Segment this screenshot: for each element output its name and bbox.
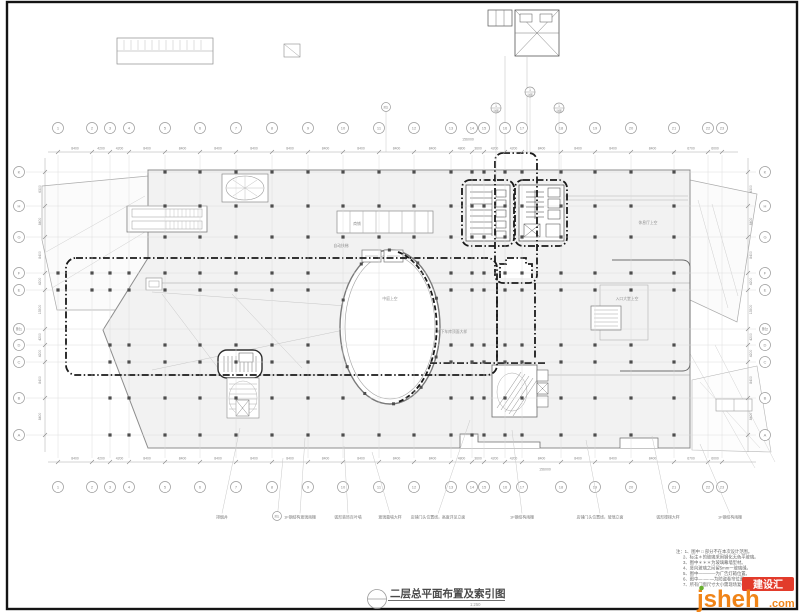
column-dot [470, 343, 473, 346]
dimension-label: 4200 [749, 278, 753, 286]
column-dot [559, 271, 562, 274]
column-dot [198, 204, 201, 207]
column-dot [503, 288, 506, 291]
column-dot-atrium [360, 262, 363, 265]
column-dot [629, 288, 632, 291]
column-dot-atrium [435, 297, 438, 300]
column-dot [629, 433, 632, 436]
column-dot [412, 204, 415, 207]
column-dot [270, 433, 273, 436]
grid-bubble-bottom-label: 23 [720, 485, 725, 490]
callout-label: 1F钢结构雨棚 [510, 515, 534, 520]
column-dot [503, 343, 506, 346]
grid-bubble-bottom-label: 21 [672, 485, 677, 490]
grid-bubble-left-label: K [18, 170, 21, 175]
column-dot [270, 204, 273, 207]
dimension-label: 8400 [250, 147, 258, 151]
dimension-label: 8400 [179, 457, 187, 461]
dimension-label: 4200 [491, 147, 499, 151]
callout-label: 弧形装饰百叶墙 [334, 515, 361, 520]
column-dot [593, 360, 596, 363]
column-dot [108, 360, 111, 363]
column-dot [470, 360, 473, 363]
dimension-label: 8400 [609, 147, 617, 151]
dimension-label: 6000 [711, 457, 719, 461]
floor-plan-drawing: 1184008400224200420033420042004484008400… [0, 0, 800, 612]
column-dot [108, 271, 111, 274]
dimension-label: 13500 [38, 305, 42, 315]
column-dot [234, 235, 237, 238]
column-dot [198, 288, 201, 291]
grid-bubble-bottom-label: 14 [470, 485, 475, 490]
column-dot [306, 288, 309, 291]
column-dot [559, 396, 562, 399]
dimension-label: 8400 [357, 457, 365, 461]
grid-bubble-top-label: 16 [503, 126, 508, 131]
column-dot [198, 235, 201, 238]
stair-right-mid [591, 306, 621, 330]
dimension-label: 8400 [322, 457, 330, 461]
drawing-title: 二层总平面布置及索引图 [390, 587, 506, 600]
column-dot [127, 271, 130, 274]
dimension-label: 8400 [393, 457, 401, 461]
grid-bubble-bottom-label: 22 [706, 485, 711, 490]
grid-bubble-left-label: H [18, 204, 21, 209]
column-dot [163, 360, 166, 363]
column-dot [163, 396, 166, 399]
column-dot [520, 235, 523, 238]
column-dot [108, 433, 111, 436]
column-dot [163, 170, 166, 173]
column-dot [306, 271, 309, 274]
grid-bubble-top-label: 10 [341, 126, 346, 131]
dimension-label: 6000 [711, 147, 719, 151]
column-dot [593, 170, 596, 173]
drawing-sheet: 1184008400224200420033420042004484008400… [0, 0, 800, 612]
grid-bubble-top-label: 15 [482, 126, 487, 131]
column-dot [198, 396, 201, 399]
column-dot [482, 204, 485, 207]
column-dot [559, 235, 562, 238]
column-dot [629, 271, 632, 274]
column-dot [198, 433, 201, 436]
dimension-label: 6300 [38, 185, 42, 193]
column-dot [163, 204, 166, 207]
dimension-label: 4200 [510, 457, 518, 461]
grid-bubble-top-label: 23 [720, 126, 725, 131]
column-dot [270, 360, 273, 363]
grid-bubble-top-label: 17 [520, 126, 525, 131]
grid-bubble-bottom-label: 13 [449, 485, 454, 490]
grid-bubble-left-label: 附1 [16, 326, 23, 332]
grid-bubble-right-label: B [764, 396, 767, 401]
dimension-label: 8400 [357, 147, 365, 151]
grid-bubble-right-label: H [764, 204, 767, 209]
column-dot-atrium [392, 402, 395, 405]
callout-label: 1F钢结构雨棚 [718, 515, 742, 520]
column-dot [306, 170, 309, 173]
grid-bubble-bottom-label: 12 [412, 485, 417, 490]
dimension-label: 4200 [97, 457, 105, 461]
callout-label: 排烟井 [216, 515, 228, 520]
column-dot [127, 360, 130, 363]
column-dot [56, 271, 59, 274]
column-dot [520, 360, 523, 363]
room-label: 自动扶梯 [333, 243, 348, 248]
dimension-label: 6300 [749, 185, 753, 193]
column-dot [306, 343, 309, 346]
grid-bubble-right-label: A [764, 433, 767, 438]
grid-bubble-bottom-label: 16 [503, 485, 508, 490]
column-dot [672, 288, 675, 291]
watermark-tld: .com [769, 598, 795, 610]
dimension-label: 8400 [71, 147, 79, 151]
dimension-label: 8400 [609, 457, 617, 461]
column-dot [520, 396, 523, 399]
column-dot [593, 204, 596, 207]
column-dot [198, 360, 201, 363]
watermark-leaf-icon [699, 586, 704, 591]
dimension-label: 4200 [38, 333, 42, 341]
column-dot [482, 343, 485, 346]
dimension-label: 4200 [116, 147, 124, 151]
dimension-label: 4200 [38, 278, 42, 286]
column-dot [306, 204, 309, 207]
room-label: 商铺 [353, 221, 361, 226]
column-dot [306, 360, 309, 363]
grid-bubble-right-label: D [764, 343, 767, 348]
grid-bubble-bottom-label: 15 [482, 485, 487, 490]
column-dot-atrium [363, 392, 366, 395]
column-dot [482, 235, 485, 238]
column-dot [593, 433, 596, 436]
dimension-label: 8400 [179, 147, 187, 151]
column-dot [503, 204, 506, 207]
dimension-label: 8400 [749, 218, 753, 226]
column-dot [377, 235, 380, 238]
column-dot-atrium [388, 249, 391, 252]
column-dot [449, 271, 452, 274]
leader-line [344, 446, 348, 514]
column-dot [520, 170, 523, 173]
column-dot [198, 170, 201, 173]
dimension-label: 4200 [491, 457, 499, 461]
column-dot [449, 204, 452, 207]
column-dot [127, 433, 130, 436]
column-dot [234, 204, 237, 207]
room-label: 中庭上空 [382, 296, 397, 301]
column-dot [470, 433, 473, 436]
column-dot [629, 170, 632, 173]
grid-bubble-top-label: 18 [559, 126, 564, 131]
column-dot [306, 396, 309, 399]
column-dot [449, 288, 452, 291]
detail-callout-sub: 详图 [556, 109, 562, 113]
grid-bubble-right-label: K [764, 170, 767, 175]
column-dot [470, 170, 473, 173]
column-dot [377, 204, 380, 207]
dimension-label: 4200 [116, 457, 124, 461]
column-dot [377, 433, 380, 436]
grid-bubble-bottom-label: 20 [629, 485, 634, 490]
dimension-label: 8400 [393, 147, 401, 151]
grid-bubble-top-label: 21 [672, 126, 677, 131]
column-dot [412, 235, 415, 238]
dimension-label: 6700 [687, 457, 695, 461]
dimension-label: 8400 [214, 147, 222, 151]
column-dot [234, 396, 237, 399]
column-dot [127, 288, 130, 291]
detail-callout-number: 1 [495, 104, 497, 108]
column-dot [672, 271, 675, 274]
column-dot [234, 288, 237, 291]
column-dot [629, 360, 632, 363]
dimension-label: 8400 [322, 147, 330, 151]
column-dot [559, 343, 562, 346]
aux-grid-bubble-label: 附2 [384, 104, 389, 109]
grid-bubble-left-label: E [18, 288, 21, 293]
dimension-label: 8400 [250, 457, 258, 461]
total-dimension-bottom: 156000 [539, 468, 551, 472]
column-dot [90, 271, 93, 274]
dimension-label: 8400 [71, 457, 79, 461]
column-dot [198, 343, 201, 346]
column-dot [503, 271, 506, 274]
column-dot [559, 170, 562, 173]
column-dot [482, 433, 485, 436]
column-dot [270, 271, 273, 274]
column-dot [629, 235, 632, 238]
dimension-label: 3600 [474, 147, 482, 151]
column-dot [56, 288, 59, 291]
leader-line [277, 458, 283, 521]
detail-callout-sub: 详图 [527, 93, 533, 97]
detail-callout-number: 1 [558, 104, 560, 108]
column-dot [520, 204, 523, 207]
dimension-label: 8400 [574, 457, 582, 461]
dimension-label: 8400 [574, 147, 582, 151]
column-dot [449, 396, 452, 399]
grid-bubble-top-label: 14 [470, 126, 475, 131]
total-dimension-top: 156000 [462, 138, 474, 142]
dimension-label: 8400 [286, 457, 294, 461]
column-dot [449, 235, 452, 238]
grid-bubble-bottom-label: 10 [341, 485, 346, 490]
dimension-label: 4200 [749, 333, 753, 341]
column-dot [270, 170, 273, 173]
column-dot [234, 360, 237, 363]
column-dot [163, 343, 166, 346]
grid-bubble-top-label: 13 [449, 126, 454, 131]
column-dot [593, 288, 596, 291]
column-dot [270, 396, 273, 399]
column-dot [482, 288, 485, 291]
column-dot [672, 204, 675, 207]
column-dot [503, 360, 506, 363]
column-dot [593, 343, 596, 346]
dimension-label: 8400 [538, 147, 546, 151]
column-dot [341, 396, 344, 399]
column-dot [306, 235, 309, 238]
column-dot-atrium [346, 365, 349, 368]
column-dot [270, 235, 273, 238]
column-dot [412, 433, 415, 436]
callout-label: 玻璃幕墙大样 [378, 515, 401, 520]
title-block: 二层总平面布置及索引图 1:250 [368, 587, 506, 609]
column-dot [108, 343, 111, 346]
grid-bubble-bottom-label: 17 [520, 485, 525, 490]
column-dot-atrium [420, 386, 423, 389]
column-dot [341, 204, 344, 207]
column-dot [559, 288, 562, 291]
column-dot [341, 170, 344, 173]
dimension-label: 8400 [538, 457, 546, 461]
column-dot [482, 271, 485, 274]
out-of-scope-right [690, 180, 757, 322]
grid-bubble-top-label: 12 [412, 126, 417, 131]
column-dot [482, 170, 485, 173]
column-dot [108, 288, 111, 291]
dimension-label: 13500 [749, 305, 753, 315]
column-dot [163, 271, 166, 274]
callout-label: 店铺门头位置线，玻璃立面 [577, 515, 624, 520]
leader-line [372, 452, 390, 514]
grid-bubble-right-label: G [763, 235, 766, 240]
callout-label: 弧形楼梯大样 [656, 515, 679, 520]
toilet-core [466, 185, 510, 241]
dimension-label: 4200 [97, 147, 105, 151]
column-dot [470, 396, 473, 399]
dimension-label: 8400 [286, 147, 294, 151]
dimension-label: 8400 [38, 218, 42, 226]
stair-elevator-core [519, 185, 564, 241]
column-dot [482, 360, 485, 363]
aux-grid-bubble-label: 附1 [275, 513, 280, 518]
column-dot [234, 170, 237, 173]
column-dot [470, 288, 473, 291]
grid-bubble-top-label: 22 [706, 126, 711, 131]
grid-bubble-right-label: E [764, 288, 767, 293]
dimension-label: 8400 [214, 457, 222, 461]
column-dot [672, 360, 675, 363]
dimension-label: 8400 [649, 457, 657, 461]
grid-bubble-left-label: D [18, 343, 21, 348]
callout-label: 1F钢结构玻璃雨棚 [284, 515, 316, 520]
column-dot [629, 204, 632, 207]
column-dot [520, 288, 523, 291]
column-dot [520, 343, 523, 346]
stair-top-left [222, 174, 268, 202]
column-dot [470, 204, 473, 207]
column-dot-atrium [342, 298, 345, 301]
column-dot [198, 271, 201, 274]
grid-bubble-bottom-label: 18 [559, 485, 564, 490]
column-dot [503, 433, 506, 436]
dimension-label: 8400 [429, 457, 437, 461]
column-dot [520, 433, 523, 436]
column-dot [377, 170, 380, 173]
column-dot [629, 396, 632, 399]
column-dot [341, 235, 344, 238]
column-dot [629, 343, 632, 346]
column-dot [672, 343, 675, 346]
shops-row [337, 211, 433, 233]
column-dot [672, 396, 675, 399]
grid-bubble-top-label: 20 [629, 126, 634, 131]
column-dot [341, 433, 344, 436]
dimension-label: 4800 [458, 457, 466, 461]
detail-callout-sub: 详图 [493, 109, 499, 113]
column-dot [672, 433, 675, 436]
room-label: 入口大堂上空 [616, 296, 639, 301]
dimension-label: 8400 [429, 147, 437, 151]
column-dot [503, 170, 506, 173]
column-dot [412, 170, 415, 173]
dimension-label: 8400 [749, 251, 753, 259]
column-dot [559, 433, 562, 436]
column-dot [306, 433, 309, 436]
column-dot [234, 433, 237, 436]
dimension-label: 4200 [510, 147, 518, 151]
dimension-label: 3600 [474, 457, 482, 461]
dimension-label: 4800 [458, 147, 466, 151]
column-dot [672, 170, 675, 173]
column-dot-atrium [435, 355, 438, 358]
drawing-scale: 1:250 [470, 602, 481, 607]
dimension-label: 8400 [649, 147, 657, 151]
column-dot [559, 204, 562, 207]
column-dot-atrium [416, 261, 419, 264]
column-dot [470, 235, 473, 238]
grid-bubble-top-label: 19 [593, 126, 598, 131]
dimension-label: 8400 [143, 457, 151, 461]
column-dot [234, 271, 237, 274]
column-dot [163, 235, 166, 238]
column-dot [449, 170, 452, 173]
leader-line [300, 438, 305, 514]
column-dot [449, 343, 452, 346]
grid-bubble-right-label: 附2 [762, 326, 769, 332]
leader-line [700, 444, 730, 514]
grid-bubble-left-label: G [17, 235, 20, 240]
column-dot [559, 360, 562, 363]
column-dot [520, 271, 523, 274]
grid-bubble-left-label: C [18, 360, 21, 365]
column-dot [449, 433, 452, 436]
column-dot [593, 271, 596, 274]
dimension-label: 4200 [749, 350, 753, 358]
dimension-label: 8400 [749, 413, 753, 421]
entrance-notch-2 [620, 438, 658, 448]
dimension-label: 8400 [38, 251, 42, 259]
column-dot [270, 288, 273, 291]
dimension-label: 6700 [687, 147, 695, 151]
room-label: 地下车库顶面大样 [437, 329, 468, 334]
grid-bubble-left-label: B [18, 396, 21, 401]
column-dot [234, 343, 237, 346]
dimension-label: 8400 [38, 413, 42, 421]
column-dot [672, 235, 675, 238]
dimension-label: 8400 [38, 376, 42, 384]
column-dot [482, 396, 485, 399]
column-dot [449, 360, 452, 363]
dimension-label: 8400 [143, 147, 151, 151]
column-dot [593, 235, 596, 238]
detail-callout-number: 1 [529, 88, 531, 92]
column-dot [90, 288, 93, 291]
column-dot [503, 235, 506, 238]
grid-bubble-left-label: A [18, 433, 21, 438]
